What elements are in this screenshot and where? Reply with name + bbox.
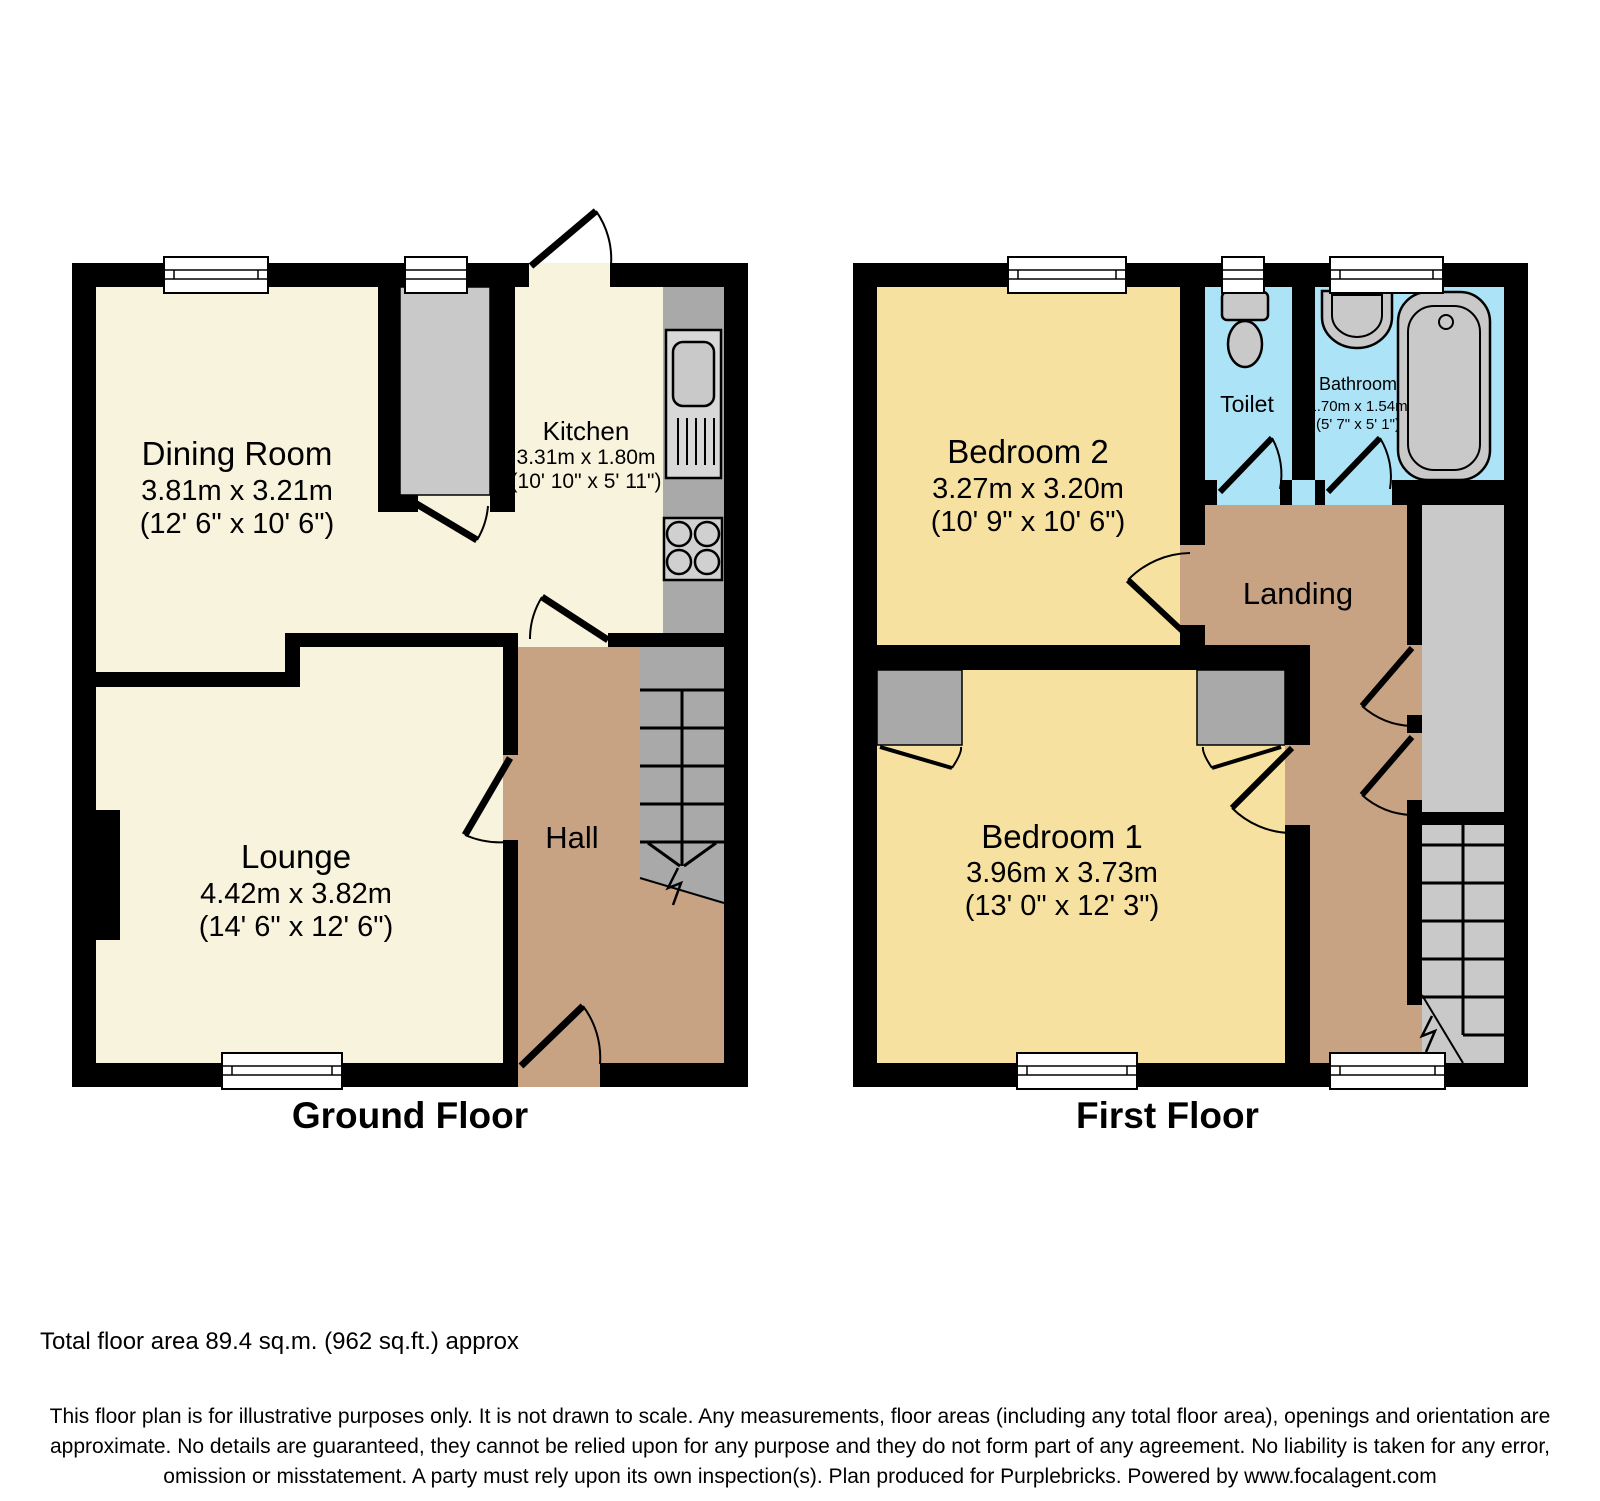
bedroom1-metric: 3.96m x 3.73m bbox=[966, 857, 1158, 889]
wardrobe-left bbox=[877, 670, 962, 745]
window-icon bbox=[1330, 257, 1443, 293]
kitchen-label: Kitchen bbox=[543, 416, 630, 446]
bedroom2-doorway bbox=[1180, 545, 1205, 625]
kitchen-imperial: (10' 10" x 5' 11") bbox=[511, 470, 662, 493]
ground-floor-title: Ground Floor bbox=[72, 1095, 748, 1137]
window-icon bbox=[1222, 257, 1264, 293]
floorplan-page: Dining Room 3.81m x 3.21m (12' 6" x 10' … bbox=[0, 0, 1600, 1501]
basin-icon bbox=[1322, 291, 1392, 348]
dining-room-metric: 3.81m x 3.21m bbox=[141, 475, 333, 507]
bathroom-label: Bathroom bbox=[1319, 374, 1397, 394]
first-floor-plan: Bedroom 2 3.27m x 3.20m (10' 9" x 10' 6"… bbox=[853, 257, 1528, 1089]
bedroom2-label: Bedroom 2 bbox=[947, 433, 1108, 470]
kitchen-back-doorway bbox=[529, 263, 610, 287]
ground-stairs-icon bbox=[640, 647, 724, 905]
window-icon bbox=[1008, 257, 1126, 293]
lounge-label: Lounge bbox=[241, 838, 351, 875]
store-cupboard bbox=[400, 287, 490, 495]
hob-icon bbox=[664, 518, 722, 580]
window-icon bbox=[1017, 1053, 1137, 1089]
window-icon bbox=[1330, 1053, 1445, 1089]
window-icon bbox=[164, 257, 268, 293]
landing-label: Landing bbox=[1243, 576, 1353, 611]
sink-icon bbox=[666, 330, 721, 478]
cupboard-floor bbox=[1422, 505, 1504, 812]
wardrobe-right bbox=[1197, 670, 1285, 745]
front-doorway bbox=[518, 1063, 600, 1087]
first-floor-title: First Floor bbox=[830, 1095, 1505, 1137]
window-icon bbox=[222, 1053, 342, 1089]
dining-room-imperial: (12' 6" x 10' 6") bbox=[140, 508, 334, 540]
chimney-breast bbox=[96, 810, 120, 940]
bathroom-metric: 1.70m x 1.54m bbox=[1308, 398, 1407, 415]
floorplan-drawing: Dining Room 3.81m x 3.21m (12' 6" x 10' … bbox=[0, 0, 1600, 1501]
bedroom1-imperial: (13' 0" x 12' 3") bbox=[965, 890, 1159, 922]
bathroom-imperial: (5' 7" x 5' 1") bbox=[1316, 416, 1400, 433]
total-floor-area-text: Total floor area 89.4 sq.m. (962 sq.ft.)… bbox=[40, 1328, 519, 1356]
hall-label: Hall bbox=[545, 820, 598, 855]
lounge-metric: 4.42m x 3.82m bbox=[200, 878, 392, 910]
ground-floor-plan: Dining Room 3.81m x 3.21m (12' 6" x 10' … bbox=[72, 211, 748, 1089]
disclaimer-text: This floor plan is for illustrative purp… bbox=[35, 1402, 1565, 1492]
back-door-arc bbox=[531, 211, 611, 266]
bedroom1-doorway bbox=[1285, 745, 1310, 825]
toilet-label: Toilet bbox=[1220, 391, 1274, 417]
dining-room-label: Dining Room bbox=[142, 435, 333, 472]
bedroom2-metric: 3.27m x 3.20m bbox=[932, 473, 1124, 505]
lounge-imperial: (14' 6" x 12' 6") bbox=[199, 911, 393, 943]
kitchen-metric: 3.31m x 1.80m bbox=[517, 446, 656, 469]
window-icon bbox=[405, 257, 467, 293]
bath-icon bbox=[1398, 292, 1490, 480]
bedroom1-label: Bedroom 1 bbox=[981, 818, 1142, 855]
bedroom2-imperial: (10' 9" x 10' 6") bbox=[931, 506, 1125, 538]
